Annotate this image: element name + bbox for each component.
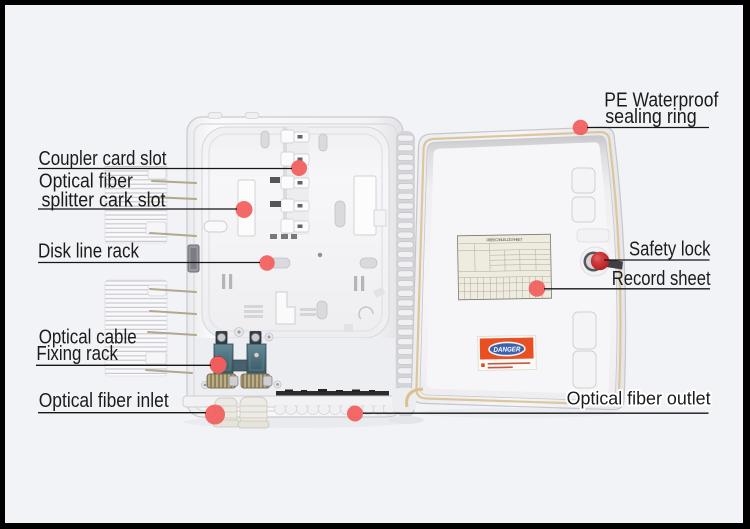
svg-text:Disk line rack: Disk line rack [38,241,140,263]
svg-text:sealing ring: sealing ring [605,106,697,128]
svg-text:Safety lock: Safety lock [629,239,711,261]
svg-text:splitter cark slot: splitter cark slot [42,190,166,212]
svg-text:Optical fiber outlet: Optical fiber outlet [567,388,711,409]
svg-text:DANGER: DANGER [493,346,520,353]
svg-text:Fixing rack: Fixing rack [36,343,118,365]
svg-text:Coupler card slot: Coupler card slot [39,148,167,170]
svg-text:Optical fiber inlet: Optical fiber inlet [39,390,169,412]
svg-text:FIBER CABLE LOG SHEET: FIBER CABLE LOG SHEET [486,237,523,243]
svg-text:Record sheet: Record sheet [612,268,711,290]
